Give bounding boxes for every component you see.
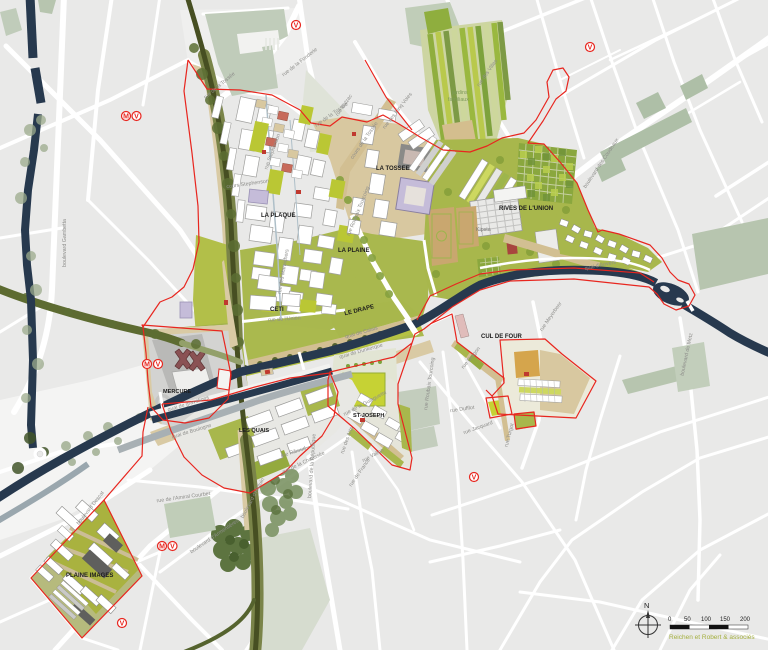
svg-text:boulevard Gambetta: boulevard Gambetta — [62, 219, 68, 267]
svg-text:familiaux: familiaux — [448, 97, 469, 103]
svg-text:100: 100 — [701, 617, 712, 623]
svg-text:CUL DE FOUR: CUL DE FOUR — [481, 334, 523, 340]
svg-text:V: V — [170, 544, 175, 551]
svg-text:LA TOSSEE: LA TOSSEE — [376, 166, 410, 172]
svg-text:V: V — [120, 621, 125, 628]
svg-text:Kipsta: Kipsta — [476, 227, 491, 233]
svg-text:MERCURE: MERCURE — [163, 389, 192, 395]
svg-text:LES QUAIS: LES QUAIS — [239, 428, 269, 434]
svg-text:50: 50 — [684, 617, 691, 623]
svg-text:V: V — [588, 45, 593, 52]
svg-text:LA PLAQUE: LA PLAQUE — [261, 213, 295, 219]
svg-text:PLAINE IMAGES: PLAINE IMAGES — [66, 573, 113, 579]
svg-text:V: V — [294, 23, 299, 30]
svg-text:LA PLAINE: LA PLAINE — [338, 248, 369, 254]
svg-text:Reichen et Robert & associés: Reichen et Robert & associés — [669, 634, 755, 641]
svg-text:CETI: CETI — [270, 307, 284, 313]
svg-text:M: M — [144, 362, 150, 369]
svg-text:V: V — [156, 362, 161, 369]
svg-text:V: V — [472, 475, 477, 482]
svg-text:200: 200 — [740, 617, 751, 623]
svg-text:V: V — [134, 114, 139, 121]
svg-text:RIVES DE L'UNION: RIVES DE L'UNION — [499, 206, 553, 212]
svg-text:M: M — [123, 114, 129, 121]
svg-text:N: N — [644, 601, 649, 610]
svg-text:M: M — [159, 544, 165, 551]
svg-text:ST-JOSEPH: ST-JOSEPH — [353, 413, 384, 419]
svg-text:150: 150 — [720, 617, 731, 623]
svg-text:jardins: jardins — [451, 90, 468, 96]
